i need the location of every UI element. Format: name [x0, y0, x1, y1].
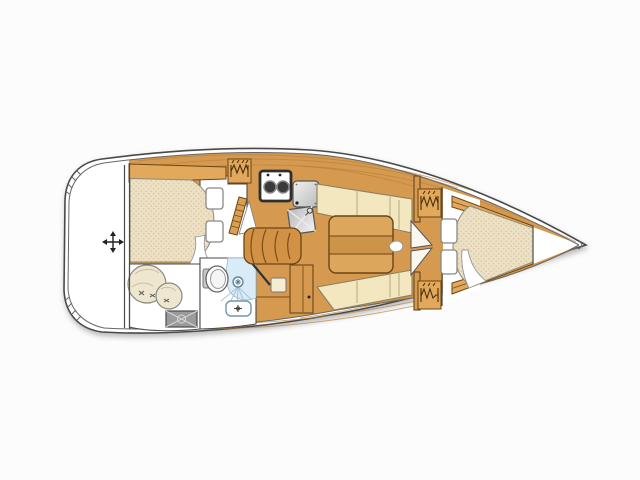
aft-step-seat-2: [206, 221, 223, 242]
table-latch: [389, 241, 403, 252]
stowage-locker: [128, 264, 200, 331]
aft-step-seat-1: [206, 188, 223, 209]
locker-hatch: [166, 311, 197, 327]
saloon-table: [329, 216, 393, 273]
saloon: [317, 184, 412, 310]
forward-step-seat-1: [441, 219, 457, 243]
icebox-lid: [293, 181, 319, 207]
hanging-locker-aft: [228, 159, 251, 183]
forward-step-seat-2: [441, 250, 457, 274]
two-burner-stove: [260, 171, 291, 201]
floor-plan-canvas: [0, 0, 640, 480]
companionway-steps: [244, 228, 301, 264]
hanging-locker-starboard: [418, 281, 441, 309]
hanging-locker-port: [418, 189, 441, 217]
yacht-floor-plan: [0, 0, 640, 480]
nav-cabinet: [290, 265, 313, 313]
washbasin: [226, 301, 251, 316]
nav-seat-cushion: [271, 278, 286, 292]
